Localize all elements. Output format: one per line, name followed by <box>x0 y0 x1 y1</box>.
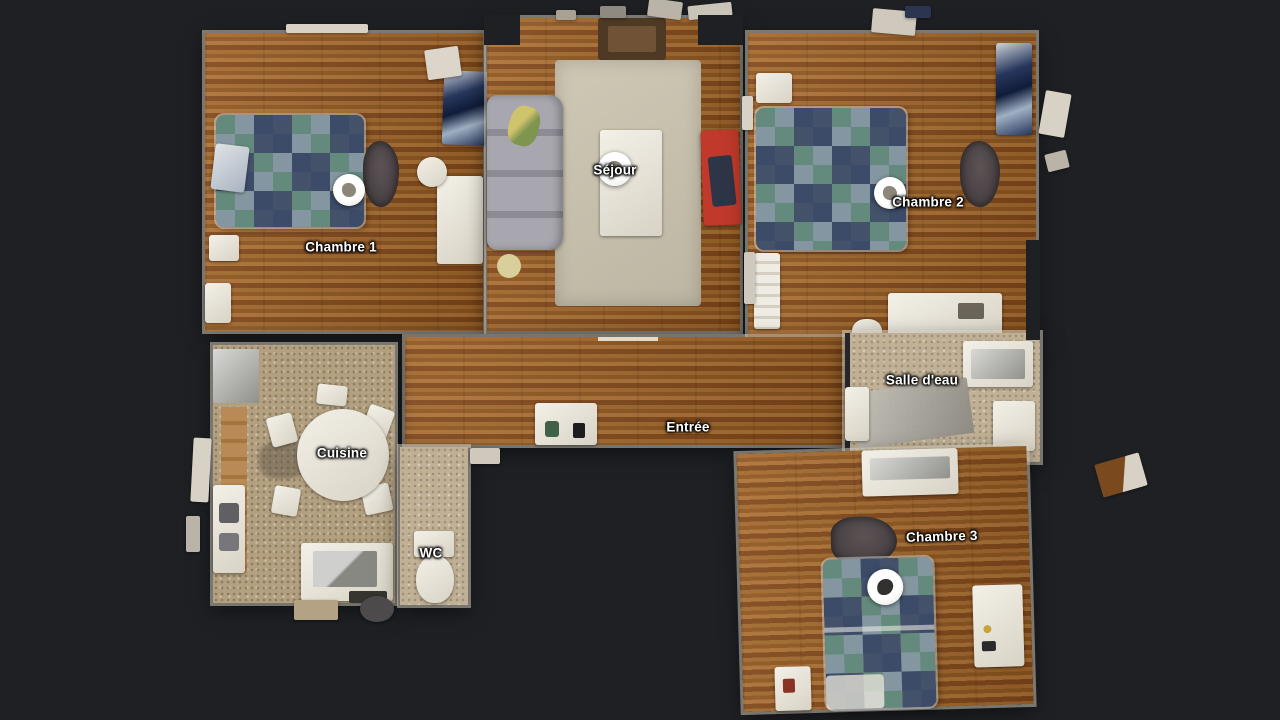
room-sejour[interactable]: Séjour <box>487 18 740 331</box>
nightstand <box>774 666 811 711</box>
floorplan-viewport[interactable]: Chambre 1 Séjour Chambre 2 <box>0 0 1280 720</box>
desk-item <box>982 641 996 651</box>
floor-cushion <box>497 254 521 278</box>
radiator <box>754 253 780 329</box>
wardrobe <box>996 43 1032 135</box>
desk <box>972 584 1024 667</box>
cabinet <box>845 387 869 441</box>
sink <box>993 401 1035 451</box>
scan-artifact <box>470 448 500 464</box>
scan-artifact <box>1038 90 1071 138</box>
scan-artifact <box>360 596 394 622</box>
room-label-chambre-2: Chambre 2 <box>892 195 964 210</box>
red-bench-cushion <box>708 155 737 207</box>
room-cuisine[interactable]: Cuisine <box>213 345 395 603</box>
room-chambre-3[interactable]: Chambre 3 <box>736 446 1033 712</box>
washing-machine <box>213 485 245 573</box>
desk-item-small <box>983 625 991 633</box>
scan-artifact <box>286 24 368 33</box>
black-item <box>573 423 585 438</box>
scan-artifact <box>600 6 626 18</box>
scan-artifact <box>556 10 576 20</box>
desk-chair <box>417 157 447 187</box>
room-label-chambre-3: Chambre 3 <box>906 528 978 545</box>
nightstand <box>209 235 239 261</box>
console-top <box>608 26 656 52</box>
room-salle-deau[interactable]: Salle d'eau <box>845 333 1040 462</box>
room-label-entree: Entrée <box>666 420 709 435</box>
desk <box>437 176 483 264</box>
kitchen-sink <box>313 551 377 587</box>
wall-notch <box>484 15 520 45</box>
washer-drawer <box>219 533 239 551</box>
puck-glyph-icon <box>342 183 357 198</box>
radiator <box>205 283 231 323</box>
dresser <box>861 448 958 497</box>
toilet-bowl <box>416 555 454 603</box>
scan-artifact <box>744 252 755 304</box>
wall-notch <box>1026 240 1040 340</box>
scan-artifact <box>905 6 931 18</box>
nav-puck-chambre-1[interactable] <box>333 174 365 206</box>
scan-artifact <box>742 96 753 130</box>
washer-door <box>219 503 239 523</box>
scan-artifact <box>1094 452 1148 497</box>
scan-artifact <box>190 438 211 503</box>
room-label-salle-deau: Salle d'eau <box>886 373 958 388</box>
bathtub <box>963 341 1033 387</box>
puck-glyph-icon <box>877 578 894 595</box>
door-threshold <box>598 337 658 341</box>
fur-rug <box>960 141 1000 207</box>
room-label-wc: WC <box>420 546 443 561</box>
room-label-chambre-1: Chambre 1 <box>305 240 377 255</box>
console-cabinet <box>598 18 666 60</box>
chair <box>271 485 301 517</box>
chair <box>316 383 348 406</box>
blanket <box>826 674 885 710</box>
dresser-top <box>870 456 951 480</box>
scan-artifact <box>1044 150 1070 173</box>
wall-notch <box>698 15 743 45</box>
room-wc[interactable]: WC <box>400 447 468 605</box>
shower-glass <box>852 377 975 449</box>
red-bench <box>700 129 741 225</box>
bathtub-basin <box>971 349 1025 379</box>
scan-artifact <box>294 600 338 620</box>
scan-artifact <box>186 516 200 552</box>
room-chambre-2[interactable]: Chambre 2 <box>748 33 1036 347</box>
wardrobe <box>442 70 489 145</box>
red-item <box>783 679 795 693</box>
room-entree[interactable]: Entrée <box>405 337 848 445</box>
room-label-cuisine: Cuisine <box>317 446 367 461</box>
nightstand <box>756 73 792 103</box>
pillow <box>210 143 249 193</box>
scan-artifact <box>424 46 462 80</box>
fridge <box>213 349 259 403</box>
room-label-sejour: Séjour <box>593 163 636 178</box>
plant-item <box>545 421 559 437</box>
fur-rug <box>363 141 399 207</box>
desk-item <box>958 303 984 319</box>
